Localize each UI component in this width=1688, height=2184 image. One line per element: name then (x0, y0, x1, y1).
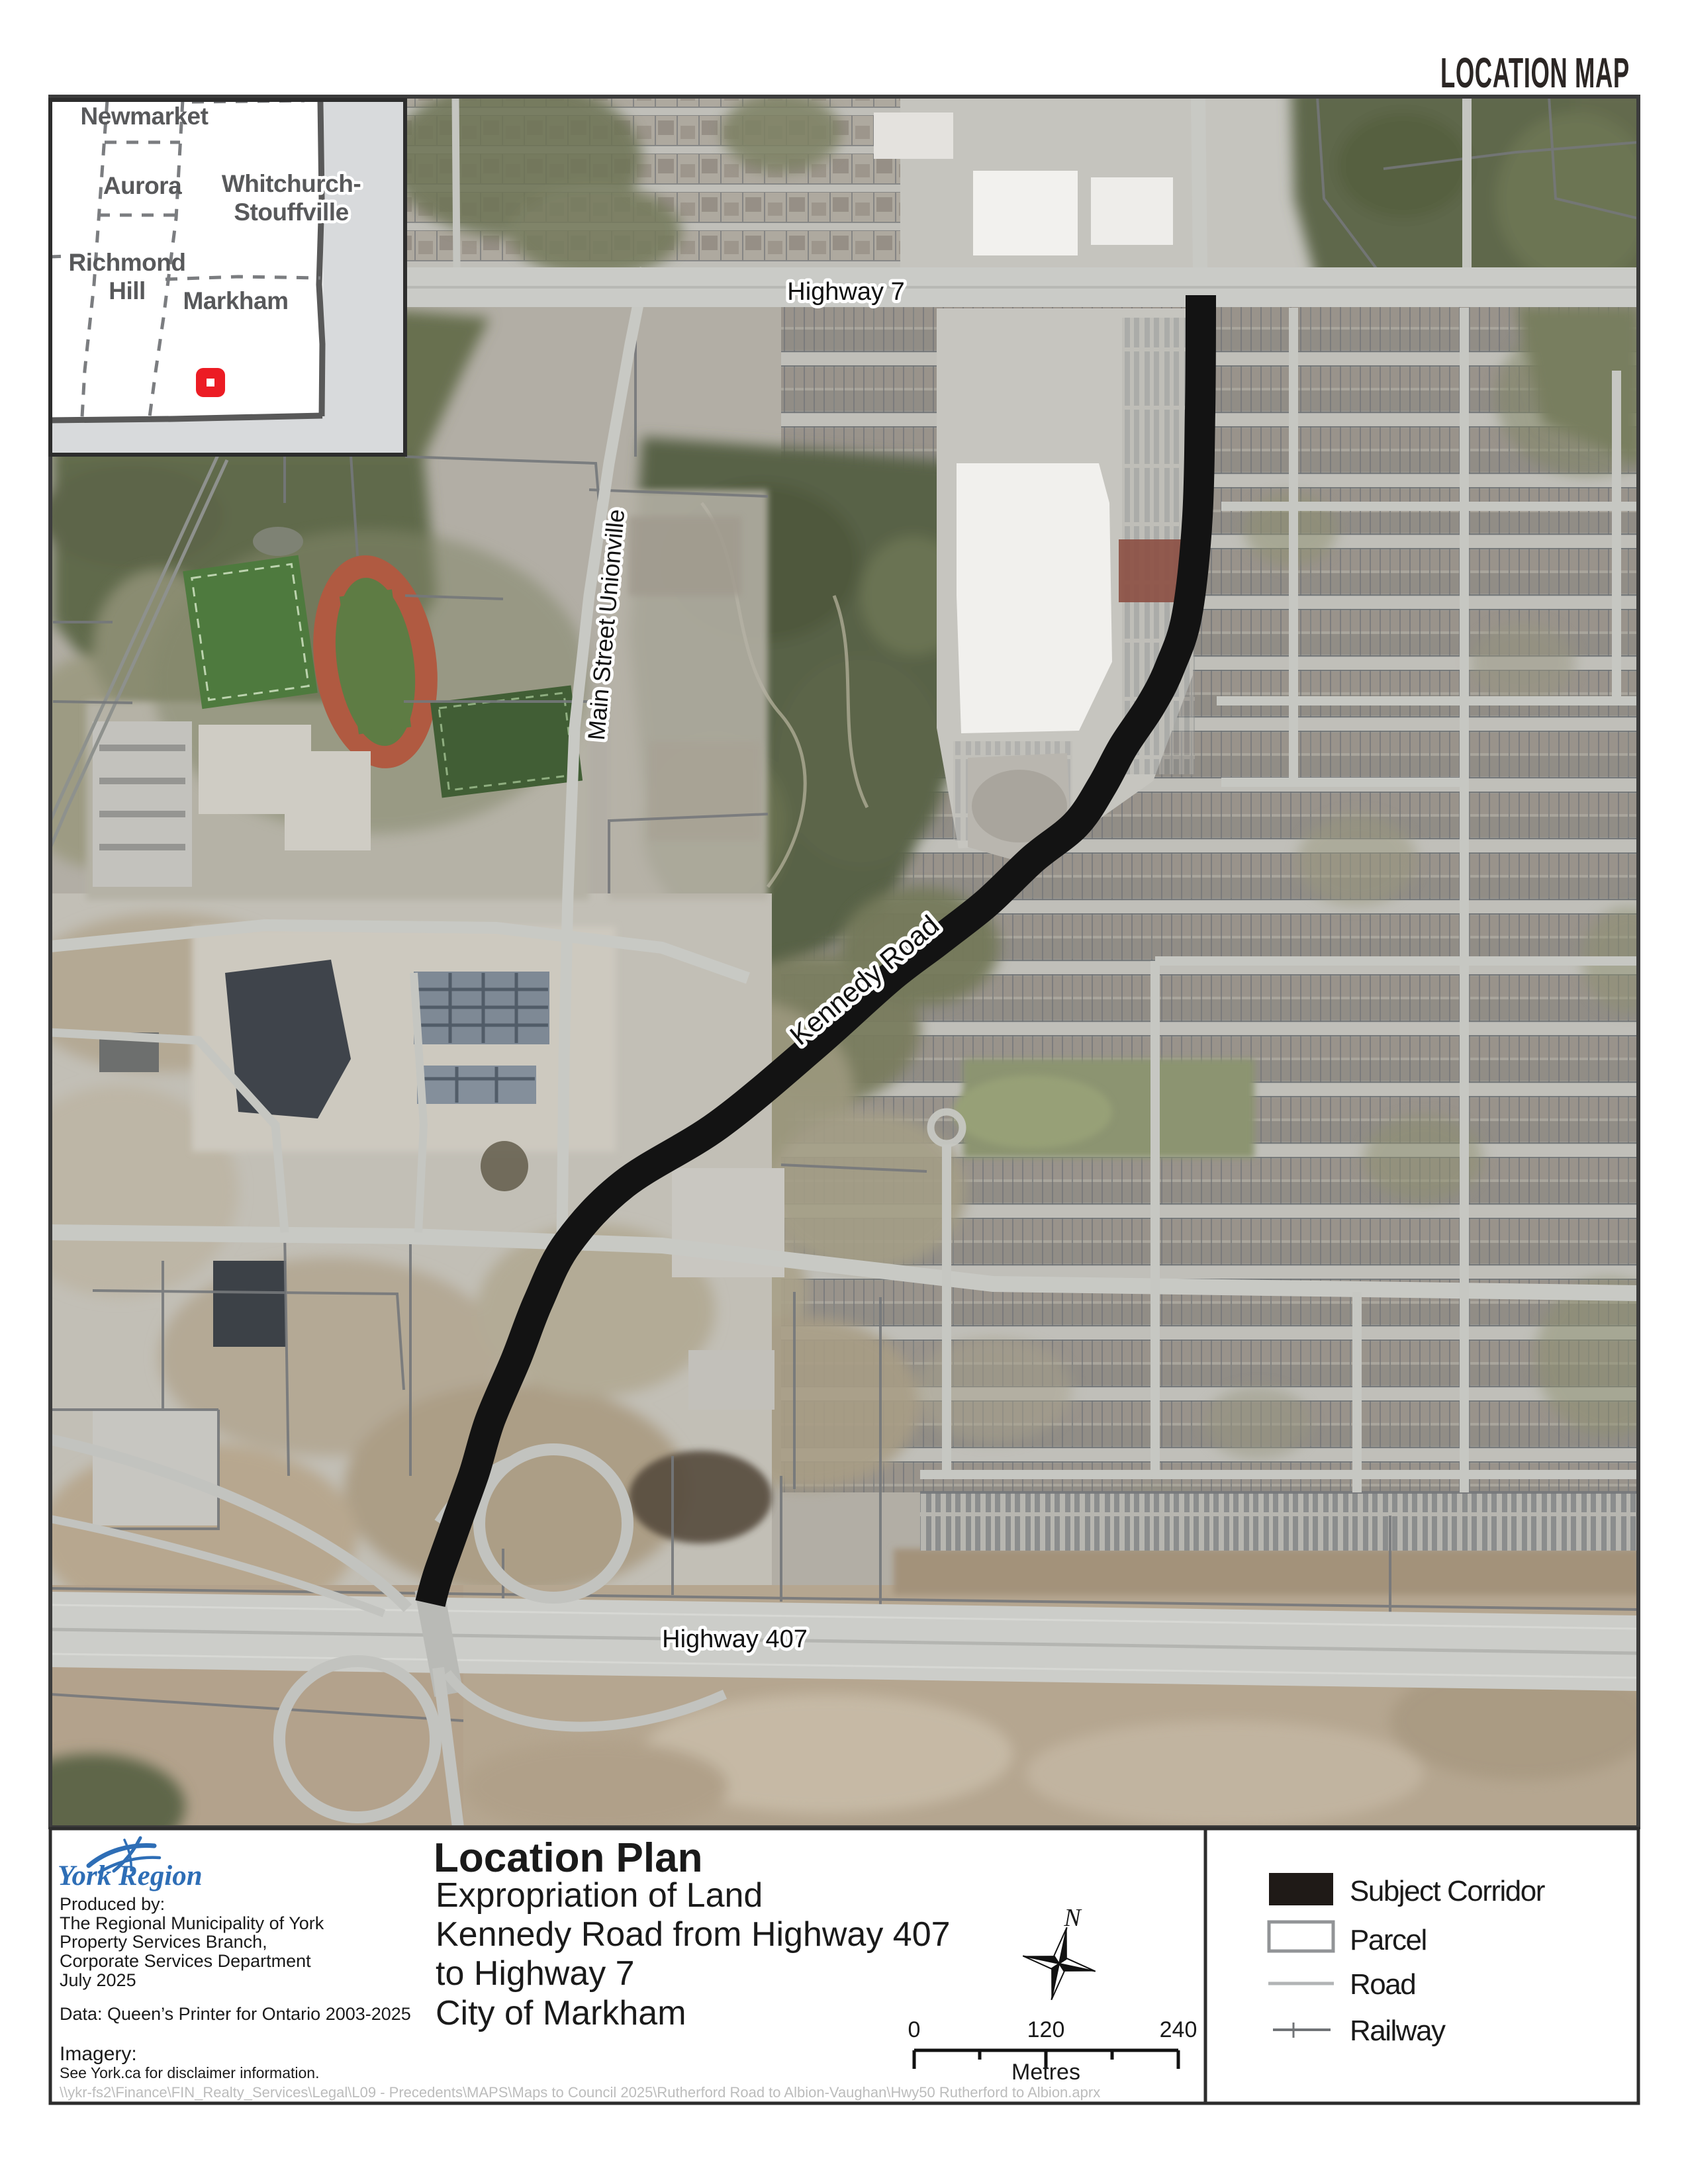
svg-text:Richmond: Richmond (69, 249, 186, 276)
svg-text:Parcel: Parcel (1350, 1924, 1427, 1956)
svg-text:Whitchurch-: Whitchurch- (222, 170, 361, 197)
svg-text:Newmarket: Newmarket (81, 103, 209, 130)
svg-text:Highway 7: Highway 7 (787, 278, 904, 306)
svg-text:0: 0 (908, 2017, 921, 2042)
svg-text:Kennedy Road from Highway 407: Kennedy Road from Highway 407 (436, 1915, 951, 1954)
svg-text:Subject Corridor: Subject Corridor (1350, 1875, 1545, 1907)
svg-text:Produced by:: Produced by: (60, 1894, 165, 1914)
svg-text:See York.ca for disclaimer inf: See York.ca for disclaimer information. (60, 2064, 319, 2081)
svg-text:Road: Road (1350, 1968, 1415, 2001)
svg-text:Markham: Markham (183, 287, 289, 314)
svg-text:Railway: Railway (1350, 2015, 1446, 2047)
svg-text:\\ykr-fs2\Finance\FIN_Realty_S: \\ykr-fs2\Finance\FIN_Realty_Services\Le… (60, 2084, 1100, 2101)
svg-text:York Region: York Region (58, 1860, 203, 1891)
svg-text:Aurora: Aurora (103, 172, 182, 199)
svg-text:July 2025: July 2025 (60, 1970, 136, 1990)
svg-text:120: 120 (1027, 2017, 1065, 2042)
svg-text:Highway 407: Highway 407 (662, 1625, 808, 1653)
svg-text:240: 240 (1160, 2017, 1197, 2042)
svg-text:Metres: Metres (1011, 2060, 1080, 2085)
svg-text:Corporate Services Department: Corporate Services Department (60, 1951, 311, 1971)
svg-text:LOCATION MAP: LOCATION MAP (1440, 50, 1630, 97)
svg-text:to Highway 7: to Highway 7 (436, 1954, 635, 1993)
svg-text:City of Markham: City of Markham (436, 1994, 686, 2032)
svg-text:Expropriation of Land: Expropriation of Land (436, 1876, 763, 1915)
svg-text:Location Plan: Location Plan (434, 1835, 702, 1881)
svg-text:Hill: Hill (109, 277, 146, 304)
svg-text:The Regional Municipality of Y: The Regional Municipality of York (60, 1913, 324, 1933)
svg-text:Imagery:: Imagery: (60, 2043, 137, 2065)
svg-text:Property Services Branch,: Property Services Branch, (60, 1932, 267, 1952)
svg-text:Stouffville: Stouffville (234, 199, 348, 226)
svg-text:Data: Queen’s Printer for Onta: Data: Queen’s Printer for Ontario 2003-2… (60, 2004, 411, 2024)
